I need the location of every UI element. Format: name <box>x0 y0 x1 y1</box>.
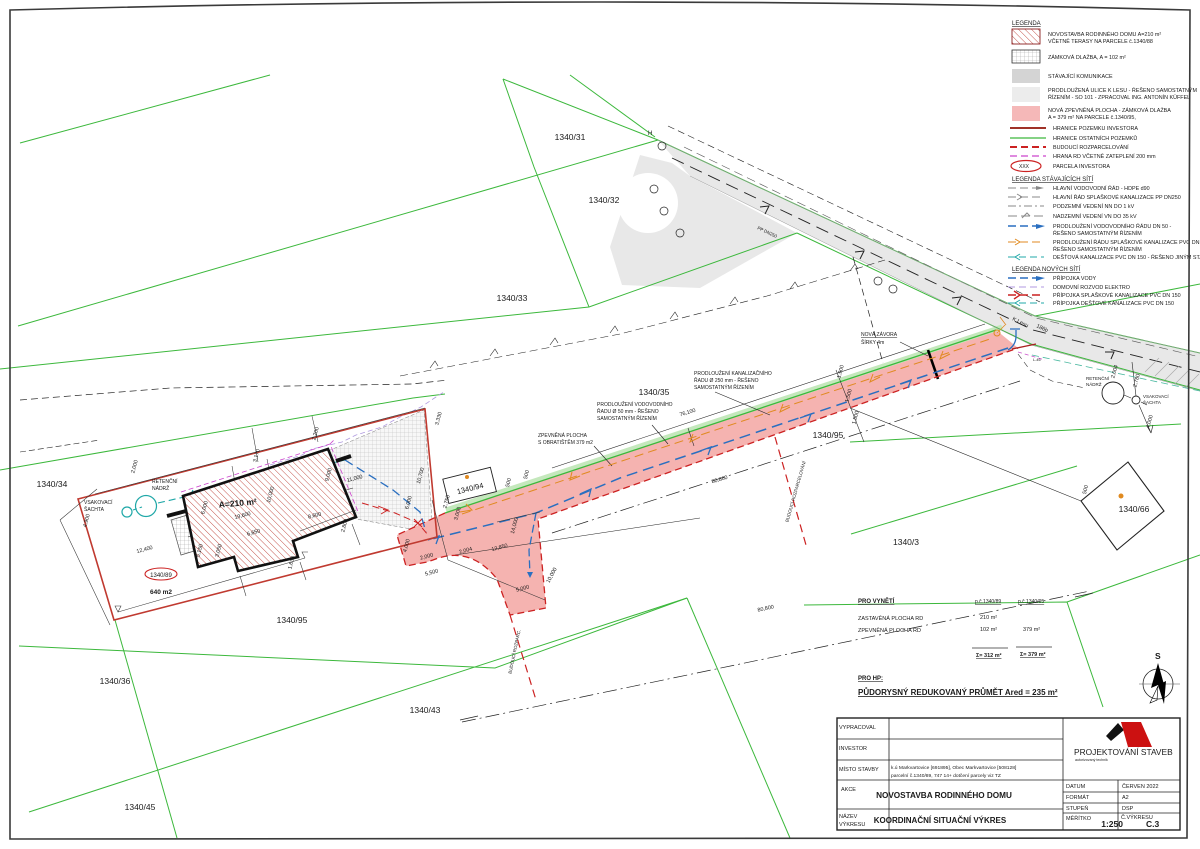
svg-text:1340/43: 1340/43 <box>410 705 441 715</box>
svg-text:A2: A2 <box>1122 795 1129 801</box>
svg-text:ŘEŠENO SAMOSTATNÝM ŘÍZENÍM: ŘEŠENO SAMOSTATNÝM ŘÍZENÍM <box>1053 229 1142 237</box>
svg-text:ŠACHTA: ŠACHTA <box>1143 399 1161 405</box>
svg-text:NÁDRŽ: NÁDRŽ <box>152 484 169 492</box>
svg-text:PROJEKTOVÁNÍ STAVEB: PROJEKTOVÁNÍ STAVEB <box>1074 747 1173 757</box>
svg-text:ŘADU Ø 250 mm - ŘEŠENO: ŘADU Ø 250 mm - ŘEŠENO <box>694 376 759 384</box>
svg-text:k.ú Markvartovice [691895], Ob: k.ú Markvartovice [691895], Obec Markvar… <box>891 765 1017 771</box>
svg-text:ZPEVNĚNÁ PLOCHA: ZPEVNĚNÁ PLOCHA <box>538 431 588 439</box>
svg-text:PRODLOUŽENÁ ULICE K LESU - ŘEŠ: PRODLOUŽENÁ ULICE K LESU - ŘEŠENO SAMOST… <box>1048 86 1197 94</box>
svg-text:XXX: XXX <box>1019 164 1030 170</box>
svg-text:DEŠŤOVÁ KANALIZACE PVC DN 150: DEŠŤOVÁ KANALIZACE PVC DN 150 - ŘEŠENO J… <box>1053 253 1200 261</box>
svg-text:ŘADU Ø 50 mm - ŘEŠENO: ŘADU Ø 50 mm - ŘEŠENO <box>597 407 659 415</box>
svg-text:1340/35: 1340/35 <box>639 387 670 397</box>
svg-text:LEGENDA NOVÝCH SÍTÍ: LEGENDA NOVÝCH SÍTÍ <box>1012 266 1081 273</box>
svg-text:HRANICE OSTATNÍCH POZEMKŮ: HRANICE OSTATNÍCH POZEMKŮ <box>1053 135 1137 142</box>
svg-text:HRANA RD VČETNĚ ZATEPLENÍ 200: HRANA RD VČETNĚ ZATEPLENÍ 200 mm <box>1053 152 1156 160</box>
svg-text:1340/95: 1340/95 <box>813 430 844 440</box>
svg-text:HLAVNÍ VODOVODNÍ ŘÁD - HDPE d9: HLAVNÍ VODOVODNÍ ŘÁD - HDPE d90 <box>1053 184 1150 192</box>
svg-text:NOVÁ ZÁVORA: NOVÁ ZÁVORA <box>861 331 898 338</box>
svg-text:1340/36: 1340/36 <box>100 676 131 686</box>
svg-text:PRODLOUŽENÍ ŘÁDU SPLAŠKOVÉ KAN: PRODLOUŽENÍ ŘÁDU SPLAŠKOVÉ KANALIZACE PV… <box>1053 238 1200 246</box>
svg-text:INVESTOR: INVESTOR <box>839 746 867 752</box>
svg-text:1340/33: 1340/33 <box>497 293 528 303</box>
svg-text:1340/89: 1340/89 <box>150 573 172 579</box>
svg-text:MĚŘÍTKO: MĚŘÍTKO <box>1066 814 1092 822</box>
svg-text:KOORDINAČNÍ SITUAČNÍ VÝKRES: KOORDINAČNÍ SITUAČNÍ VÝKRES <box>874 816 1007 825</box>
svg-text:VÝKRESU: VÝKRESU <box>839 821 865 828</box>
svg-text:PŘÍPOJKA VODY: PŘÍPOJKA VODY <box>1053 274 1097 282</box>
svg-text:NOVOSTAVBA RODINNÉHO DOMU A=2: NOVOSTAVBA RODINNÉHO DOMU A=210 m² <box>1048 31 1161 38</box>
svg-text:p.č.1340/89: p.č.1340/89 <box>975 599 1001 605</box>
svg-text:S: S <box>1155 651 1161 661</box>
svg-text:p.č.1340/95: p.č.1340/95 <box>1018 599 1044 605</box>
svg-text:640 m2: 640 m2 <box>150 589 172 596</box>
svg-text:PRO VYNĚTÍ: PRO VYNĚTÍ <box>858 597 895 605</box>
svg-text:PRODLOUŽENÍ KANALIZAČNÍHO: PRODLOUŽENÍ KANALIZAČNÍHO <box>694 369 772 377</box>
svg-text:FORMÁT: FORMÁT <box>1066 794 1090 801</box>
svg-text:PRODLOUŽENÍ VODOVODNÍHO ŘÁDU D: PRODLOUŽENÍ VODOVODNÍHO ŘÁDU DN 50 - <box>1053 222 1172 230</box>
svg-text:ČERVEN 2022: ČERVEN 2022 <box>1122 783 1159 790</box>
svg-text:ŘEŠENO SAMOSTATNÝM ŘÍZENÍM: ŘEŠENO SAMOSTATNÝM ŘÍZENÍM <box>1053 245 1142 253</box>
svg-text:PŮDORYSNÝ REDUKOVANÝ PRŮMĚT Ar: PŮDORYSNÝ REDUKOVANÝ PRŮMĚT Ared = 235 m… <box>858 687 1058 697</box>
svg-text:STÁVAJÍCÍ KOMUNIKACE: STÁVAJÍCÍ KOMUNIKACE <box>1048 73 1113 80</box>
svg-text:210 m²: 210 m² <box>980 615 997 621</box>
svg-text:NOVÁ ZPEVNĚNÁ PLOCHA - ZÁMKOVÁ: NOVÁ ZPEVNĚNÁ PLOCHA - ZÁMKOVÁ DLAŽBA <box>1048 106 1171 114</box>
svg-text:102 m²: 102 m² <box>980 627 997 633</box>
svg-text:NÁZEV: NÁZEV <box>839 813 858 820</box>
svg-text:VSAKOVACÍ: VSAKOVACÍ <box>84 499 113 506</box>
svg-text:ŠÍRKY 4m: ŠÍRKY 4m <box>861 339 884 346</box>
svg-text:LEGENDA: LEGENDA <box>1012 21 1041 27</box>
svg-text:DOMOVNÍ ROZVOD ELEKTRO: DOMOVNÍ ROZVOD ELEKTRO <box>1053 284 1130 291</box>
svg-text:PODZEMNÍ VEDENÍ NN DO 1 kV: PODZEMNÍ VEDENÍ NN DO 1 kV <box>1053 203 1135 210</box>
svg-text:H: H <box>648 131 652 137</box>
svg-text:LEGENDA STÁVAJÍCÍCH SÍTÍ: LEGENDA STÁVAJÍCÍCH SÍTÍ <box>1012 176 1094 183</box>
svg-text:DATUM: DATUM <box>1066 784 1086 790</box>
svg-text:BUDOUCÍ ROZPARCELOVÁNÍ: BUDOUCÍ ROZPARCELOVÁNÍ <box>1053 144 1129 151</box>
svg-text:1340/34: 1340/34 <box>37 479 68 489</box>
svg-text:HRANICE POZEMKU INVESTORA: HRANICE POZEMKU INVESTORA <box>1053 126 1138 132</box>
svg-text:1340/3: 1340/3 <box>893 537 919 547</box>
svg-text:RETENČNÍ: RETENČNÍ <box>152 478 178 485</box>
svg-text:PRO HP:: PRO HP: <box>858 676 883 682</box>
svg-text:A = 379 m² NA PARCELE č.1340/9: A = 379 m² NA PARCELE č.1340/95, <box>1048 115 1136 121</box>
svg-text:1340/31: 1340/31 <box>555 132 586 142</box>
svg-text:VČETNĚ TERASY NA PARCELE č.134: VČETNĚ TERASY NA PARCELE č.1340/88 <box>1048 37 1153 45</box>
svg-text:NADZEMNÍ VEDENÍ VN DO 35 kV: NADZEMNÍ VEDENÍ VN DO 35 kV <box>1053 213 1137 220</box>
svg-text:Σ= 312 m²: Σ= 312 m² <box>976 652 1002 659</box>
svg-text:STUPEŇ: STUPEŇ <box>1066 805 1088 812</box>
svg-text:SAMOSTATNÝM ŘÍZENÍM: SAMOSTATNÝM ŘÍZENÍM <box>694 383 754 391</box>
svg-text:VSAKOVACÍ: VSAKOVACÍ <box>1143 393 1169 399</box>
svg-text:1340/66: 1340/66 <box>1119 504 1150 514</box>
svg-text:ŠACHTA: ŠACHTA <box>84 506 105 513</box>
svg-text:HLAVNÍ ŘÁD SPLAŠKOVÉ KANALIZAC: HLAVNÍ ŘÁD SPLAŠKOVÉ KANALIZACE PP DN250 <box>1053 193 1181 201</box>
svg-text:PŘÍPOJKA DEŠŤOVÉ KANALIZACE PV: PŘÍPOJKA DEŠŤOVÉ KANALIZACE PVC DN 150 <box>1053 299 1174 307</box>
svg-text:1340/32: 1340/32 <box>589 195 620 205</box>
svg-text:NÁDRŽ: NÁDRŽ <box>1086 380 1102 387</box>
svg-text:SAMOSTATNÝM ŘÍZENÍM: SAMOSTATNÝM ŘÍZENÍM <box>597 414 657 422</box>
svg-text:MÍSTO STAVBY: MÍSTO STAVBY <box>839 766 879 773</box>
svg-text:VYPRACOVAL: VYPRACOVAL <box>839 725 876 731</box>
svg-text:379 m²: 379 m² <box>1023 627 1040 633</box>
svg-text:1:250: 1:250 <box>1101 819 1123 829</box>
svg-text:autorizovaný technik: autorizovaný technik <box>1075 758 1108 762</box>
svg-text:Σ= 379 m²: Σ= 379 m² <box>1020 651 1046 658</box>
svg-text:NOVOSTAVBA RODINNÉHO DOMU: NOVOSTAVBA RODINNÉHO DOMU <box>876 790 1012 800</box>
svg-text:PRODLOUŽENÍ VODOVODNÍHO: PRODLOUŽENÍ VODOVODNÍHO <box>597 400 673 408</box>
svg-text:AKCE: AKCE <box>841 787 856 793</box>
svg-text:parcelní č.1340/89, 747 14+ do: parcelní č.1340/89, 747 14+ dotčení parc… <box>891 773 1001 779</box>
svg-text:ZÁMKOVÁ DLAŽBA, A = 102 m²: ZÁMKOVÁ DLAŽBA, A = 102 m² <box>1048 53 1126 61</box>
svg-text:PARCELA INVESTORA: PARCELA INVESTORA <box>1053 164 1110 170</box>
svg-text:L-46: L-46 <box>1033 358 1041 362</box>
svg-text:PŘÍPOJKA SPLAŠKOVÉ KANALIZACE: PŘÍPOJKA SPLAŠKOVÉ KANALIZACE PVC DN 150 <box>1053 291 1181 299</box>
svg-text:ZPEVNĚNÁ PLOCHA RD: ZPEVNĚNÁ PLOCHA RD <box>858 626 921 634</box>
svg-text:1340/95: 1340/95 <box>277 615 308 625</box>
svg-text:RETENČNÍ: RETENČNÍ <box>1086 375 1110 381</box>
svg-text:ZASTAVĚNÁ PLOCHA RD: ZASTAVĚNÁ PLOCHA RD <box>858 614 923 622</box>
svg-text:S OBRATIŠTĚM 379 m2: S OBRATIŠTĚM 379 m2 <box>538 438 593 446</box>
svg-text:1340/45: 1340/45 <box>125 802 156 812</box>
svg-text:DSP: DSP <box>1122 806 1134 812</box>
svg-text:ŘÍZENÍM - SO 101 - ZPRACOVAL I: ŘÍZENÍM - SO 101 - ZPRACOVAL ING. ANTONÍ… <box>1048 93 1190 101</box>
svg-text:C.3: C.3 <box>1146 819 1160 829</box>
